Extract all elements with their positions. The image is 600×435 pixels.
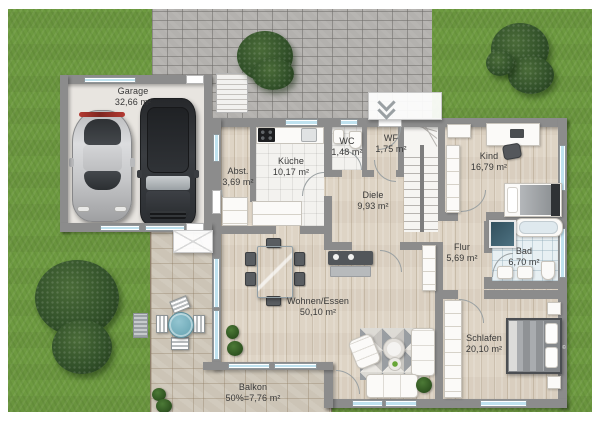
kind-bed-pillow: [507, 187, 518, 213]
room-label-wc: WC1,48 m²: [331, 136, 362, 158]
wall-living-flur: [435, 242, 443, 399]
window-balcony: [274, 363, 317, 369]
car-silver-mirror: [69, 158, 74, 167]
room-label-garage: Garage32,66 m²: [115, 86, 151, 108]
bathtub-basin: [519, 221, 558, 234]
window-living-west: [213, 258, 220, 308]
garage-side-door-top: [186, 75, 204, 84]
wall-kueche-living: [221, 226, 276, 234]
kitchen-counter-bottom: [252, 201, 302, 226]
shower: [489, 220, 516, 248]
window-living-west: [213, 310, 220, 360]
room-label-bad: Bad6,70 m²: [508, 246, 539, 268]
wall-kueche-living: [300, 226, 324, 234]
room-label-kueche: Küche10,17 m²: [273, 156, 309, 178]
window-kitchen: [285, 119, 318, 126]
page-margin: [0, 0, 600, 9]
window-garage-bottom: [100, 225, 140, 231]
window-garage-top: [84, 77, 136, 83]
dining-chair: [245, 272, 256, 286]
schlafen-bed-blanket: [517, 321, 544, 371]
car-suv-windshield: [146, 176, 190, 190]
side-table: [388, 357, 402, 371]
wall-kind-bottom: [445, 212, 458, 221]
potted-plant: [226, 325, 239, 339]
bush: [508, 56, 554, 94]
sideboard-bowl: [333, 254, 339, 260]
page-margin: [592, 0, 600, 435]
doormat: [133, 313, 148, 338]
exterior-stairs: [216, 73, 248, 113]
window-schlafen-south: [480, 400, 527, 407]
sideboard-bench: [330, 266, 371, 277]
wall-wc-wf: [362, 127, 367, 172]
kitchen-sink: [301, 128, 317, 142]
cooktop: [258, 128, 275, 142]
window-abst: [213, 134, 220, 162]
room-label-wf: WF1,75 m²: [375, 133, 406, 155]
window-bad-east: [559, 228, 566, 278]
page-margin: [0, 412, 600, 435]
wall-wc-bottom: [324, 170, 342, 177]
bush: [252, 58, 294, 90]
tree: [52, 320, 112, 374]
potted-plant: [227, 341, 243, 356]
car-silver-headlight: [114, 206, 127, 212]
wall-garage-right: [204, 75, 212, 223]
schlafen-bed-sheet: [509, 321, 517, 371]
wall-schlafen-top: [484, 290, 567, 299]
schlafen-bed-pillow: [545, 323, 558, 344]
room-label-kind: Kind16,79 m²: [471, 151, 507, 173]
room-label-wohnen-essen: Wohnen/Essen50,10 m²: [287, 296, 349, 318]
window-balcony: [228, 363, 270, 369]
abst-shelf: [222, 197, 248, 226]
room-label-diele: Diele9,93 m²: [357, 190, 388, 212]
bath-sink: [497, 266, 513, 279]
potted-plant: [156, 399, 172, 413]
room-label-abst: Abst.3,69 m²: [222, 166, 253, 188]
window-living-south: [352, 400, 383, 407]
kind-wardrobe: [446, 145, 460, 213]
dining-chair: [294, 272, 305, 286]
wall-bad-bottom: [484, 281, 567, 289]
kind-shelf: [447, 124, 471, 138]
car-silver-headlight: [77, 206, 90, 212]
abst-exterior-door: [212, 190, 221, 214]
dining-chair: [245, 252, 256, 266]
watermark-text: ©: [558, 345, 567, 403]
schlafen-bed-pillow: [545, 347, 558, 368]
sideboard-bowl: [348, 254, 354, 260]
entrance-canopy: [368, 92, 442, 120]
terrace-chair: [193, 315, 205, 333]
car-silver-rear-window: [84, 119, 121, 145]
dining-table: [257, 246, 293, 298]
wall-garage-left: [60, 75, 68, 232]
wall-stairs-kind: [438, 118, 445, 221]
terrace-chair: [171, 337, 189, 350]
room-label-flur: Flur5,69 m²: [446, 242, 477, 264]
car-suv-mirror: [194, 170, 199, 178]
kind-laptop: [510, 129, 524, 138]
potted-plant: [416, 377, 432, 393]
kind-bed-blanket: [520, 185, 551, 215]
wall-diele-living: [324, 242, 352, 250]
wall-wc-bottom: [362, 170, 374, 177]
floor-plan-page: { "plan": { "rooms": { "garage": {"name"…: [0, 0, 600, 435]
car-silver-taillights: [79, 112, 125, 117]
terrace-table: [168, 312, 194, 338]
schlafen-wardrobe: [444, 300, 462, 398]
car-suv-roof: [147, 107, 189, 173]
bath-toilet: [541, 261, 555, 280]
bush: [486, 50, 514, 76]
bath-sink: [517, 266, 533, 279]
stairs-spine-wall: [420, 145, 424, 232]
sofa: [411, 328, 435, 376]
living-cabinet: [422, 245, 436, 291]
side-canopy: [173, 230, 213, 253]
room-label-schlafen: Schlafen20,10 m²: [466, 333, 502, 355]
dining-chair: [294, 252, 305, 266]
window-kitchen: [340, 119, 358, 126]
window-living-south: [385, 400, 417, 407]
room-label-balkon: Balkon50%=7,76 m²: [226, 382, 281, 404]
car-silver-roof: [83, 145, 122, 171]
car-suv-grille: [150, 211, 186, 219]
terrace-chair: [156, 315, 168, 333]
car-silver-mirror: [130, 158, 135, 167]
kind-bed-footboard: [551, 184, 560, 216]
car-suv-mirror: [137, 170, 142, 178]
wall-schlafen-top: [443, 290, 458, 299]
sofa: [366, 374, 418, 398]
floor-plan-scene: Garage32,66 m² Küche10,17 m² Abst.3,69 m…: [0, 0, 600, 435]
nightstand: [547, 302, 561, 315]
page-margin: [0, 0, 8, 435]
